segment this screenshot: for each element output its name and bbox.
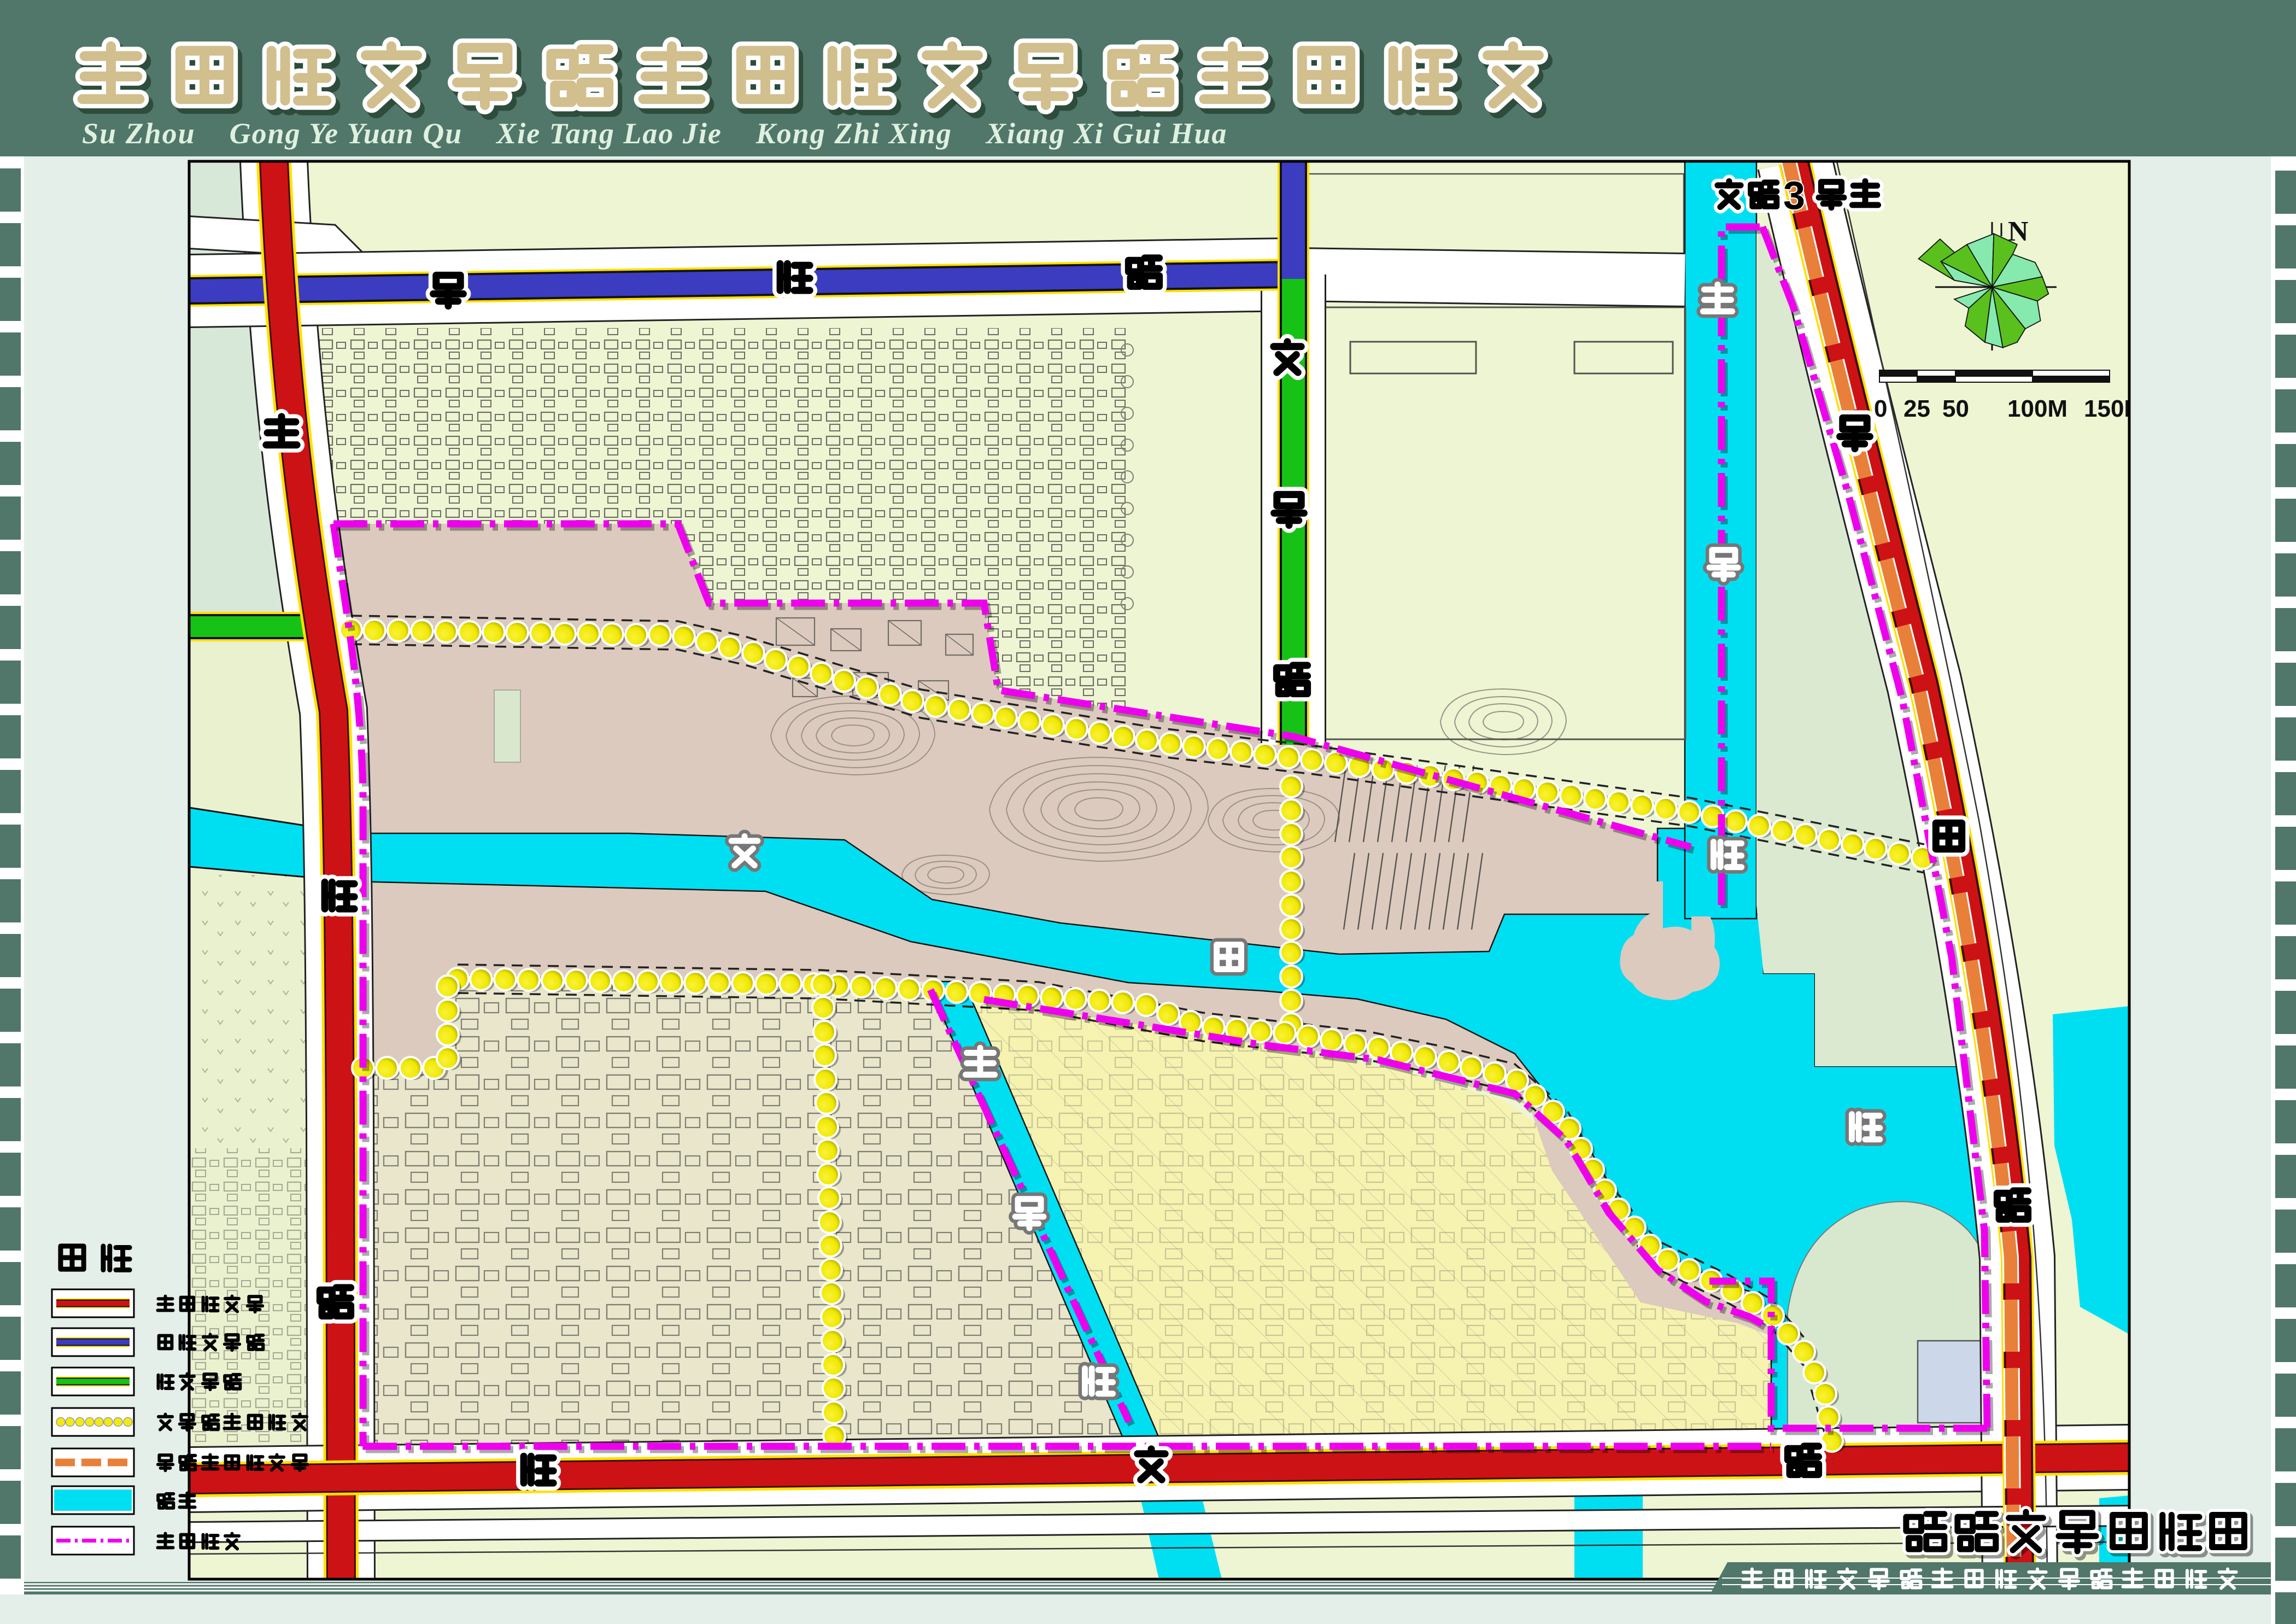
svg-text:3: 3	[1783, 174, 1805, 218]
svg-text:100M: 100M	[2007, 395, 2067, 422]
svg-text:0: 0	[1874, 395, 1887, 422]
svg-text:25: 25	[1903, 395, 1930, 422]
svg-text:50: 50	[1942, 395, 1969, 422]
svg-text:Su Zhou Gong Ye Yuan Qu: Su Zhou Gong Ye Yuan Qu Xie Tang Lao Jie…	[82, 117, 1228, 150]
